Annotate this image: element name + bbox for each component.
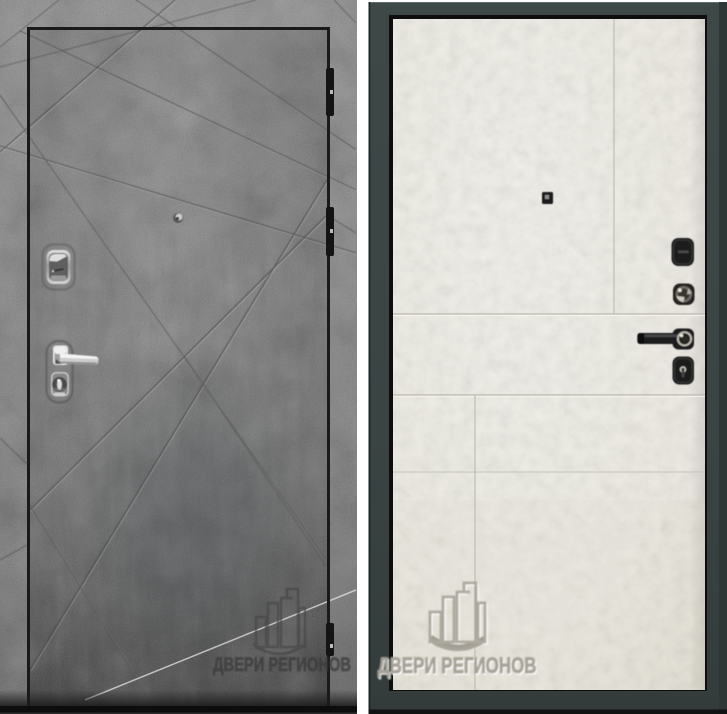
- svg-text:ДВЕРИ РЕГИОНОВ: ДВЕРИ РЕГИОНОВ: [378, 653, 537, 678]
- svg-text:ДВЕРИ РЕГИОНОВ: ДВЕРИ РЕГИОНОВ: [213, 654, 351, 676]
